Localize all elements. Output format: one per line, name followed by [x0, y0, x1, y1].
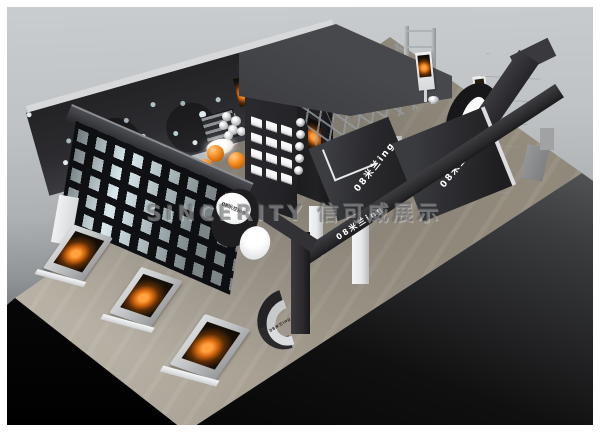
product-card	[266, 120, 277, 133]
product-card	[251, 132, 262, 145]
floor-sign-pole	[424, 90, 427, 102]
tower-knob	[296, 118, 305, 127]
poster-stand-base	[35, 269, 87, 287]
floor-sign-poster	[417, 54, 431, 77]
right-tower-base-block	[540, 128, 554, 150]
booth-render-scene: 08米兰ing 08米兰ing 08米兰ing 08米兰ing 08米兰ing …	[0, 0, 600, 432]
silver-sphere-sculpture	[222, 112, 231, 121]
silver-sphere-sculpture	[219, 121, 228, 130]
poster-stand	[109, 267, 183, 327]
poster-stand-frame	[109, 267, 183, 327]
tower-knob	[295, 142, 304, 151]
poster-stand	[169, 314, 250, 380]
product-card	[251, 116, 262, 129]
oval-logo-text: 08米兰ing	[220, 200, 247, 216]
tower-knob	[295, 154, 304, 163]
product-card	[251, 148, 262, 161]
back-wall-dots	[26, 112, 32, 118]
poster-stand-base	[160, 366, 220, 387]
product-card	[281, 156, 292, 169]
product-card	[266, 152, 277, 165]
product-card	[281, 140, 292, 153]
floor-spotlight	[428, 96, 439, 103]
product-card	[266, 168, 277, 181]
poster-artwork	[120, 274, 174, 318]
tower-knob	[294, 166, 303, 175]
product-card	[281, 172, 292, 185]
poster-stand-frame	[169, 314, 250, 380]
orange-ball-chair	[228, 152, 245, 169]
poster-stand-base	[100, 314, 154, 333]
product-card	[281, 124, 292, 137]
product-card	[251, 164, 262, 177]
tower-knob	[296, 130, 305, 139]
poster-artwork	[182, 322, 241, 370]
product-card	[266, 136, 277, 149]
